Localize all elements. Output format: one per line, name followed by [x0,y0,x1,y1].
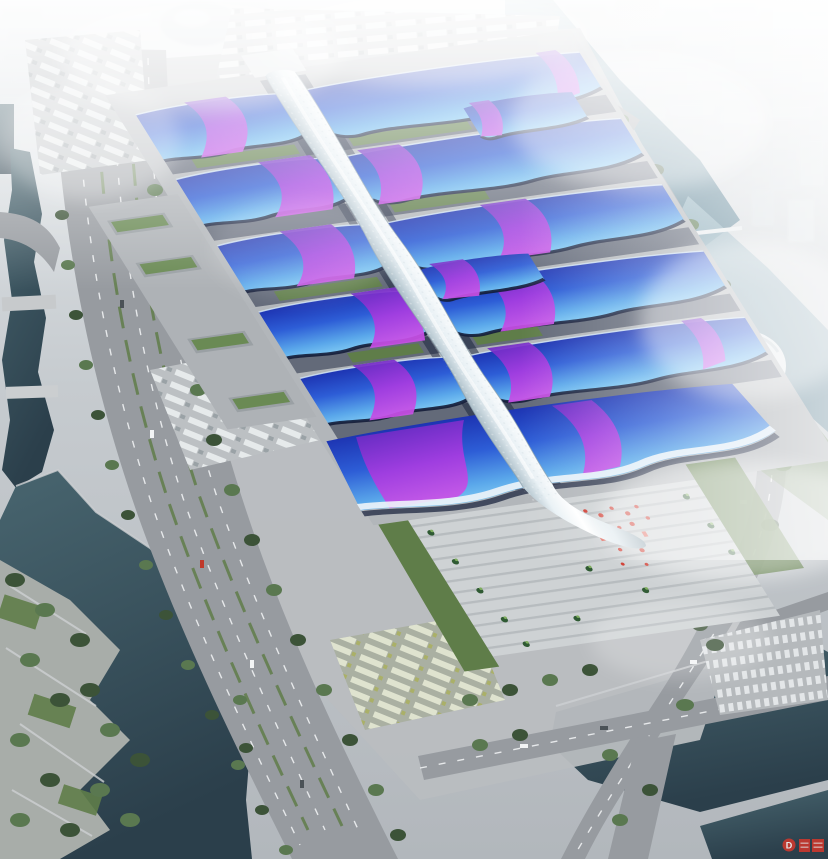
river-bridge [2,295,57,312]
watermark-letter: D [786,841,793,851]
river-bridge [6,385,58,399]
aerial-render: Bird's-eye rendering of a riverside exhi… [0,0,828,859]
aerial-render-canvas: D [0,0,828,859]
watermark: D [783,839,825,853]
